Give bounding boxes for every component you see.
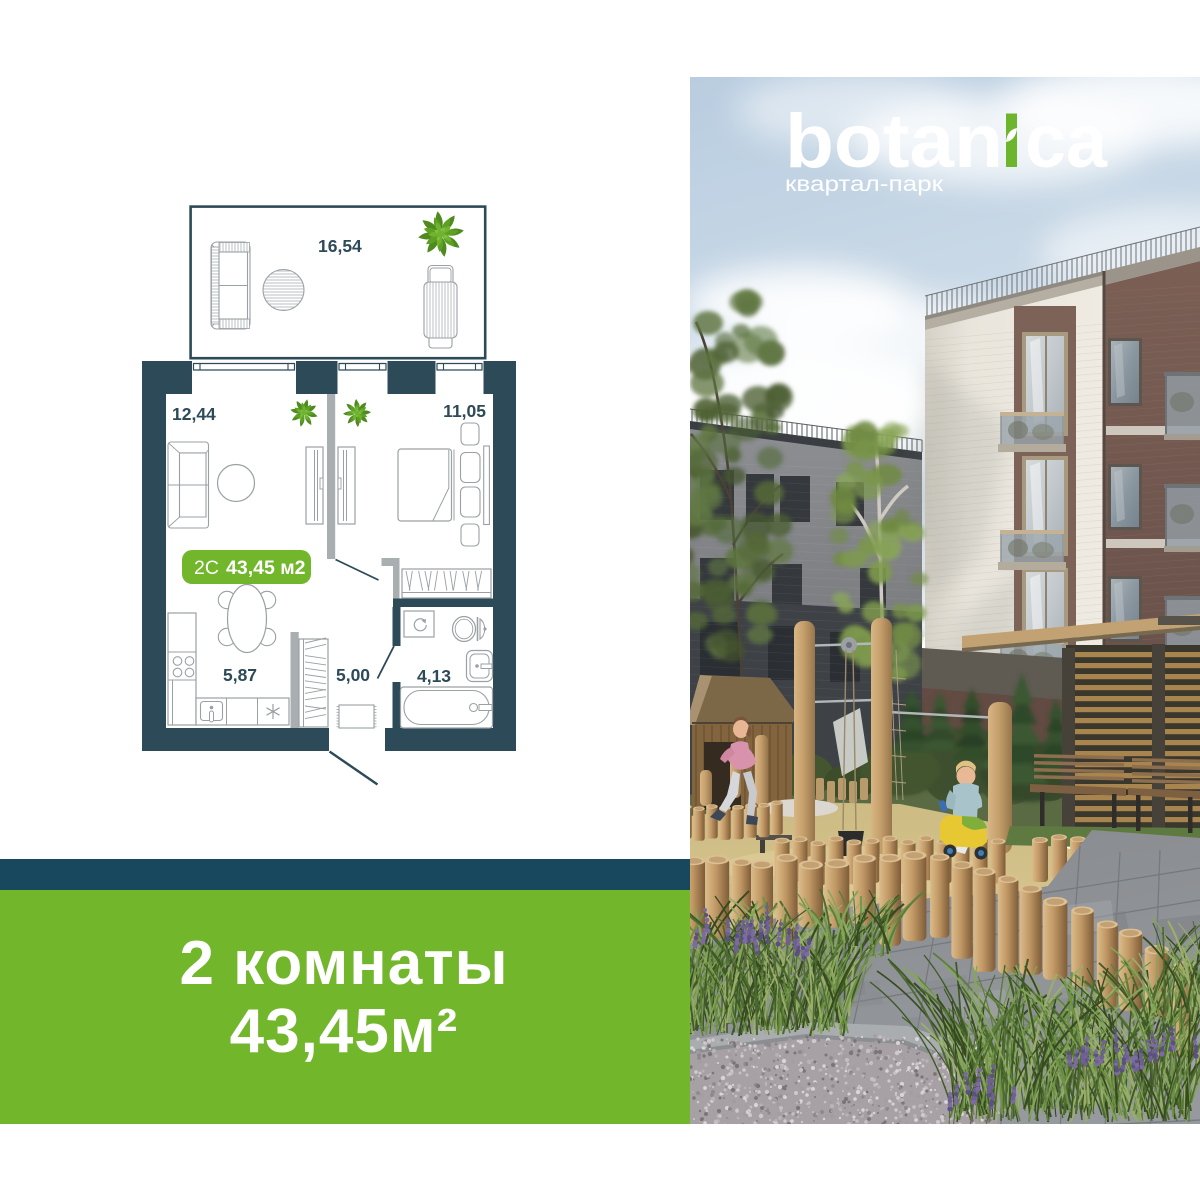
svg-text:botan: botan — [785, 99, 1003, 184]
svg-text:2 комнаты: 2 комнаты — [179, 929, 508, 998]
svg-text:2C: 2C — [194, 557, 219, 579]
svg-text:ca: ca — [1025, 99, 1108, 184]
svg-text:43,45 м2: 43,45 м2 — [226, 557, 306, 579]
svg-text:5,00: 5,00 — [336, 665, 370, 685]
svg-text:5,87: 5,87 — [223, 665, 257, 685]
svg-text:4,13: 4,13 — [417, 666, 451, 686]
svg-text:квартал-парк: квартал-парк — [785, 173, 944, 196]
svg-text:12,44: 12,44 — [172, 404, 216, 424]
svg-text:43,45м²: 43,45м² — [230, 997, 459, 1066]
svg-text:16,54: 16,54 — [318, 236, 362, 256]
svg-text:11,05: 11,05 — [443, 401, 486, 421]
